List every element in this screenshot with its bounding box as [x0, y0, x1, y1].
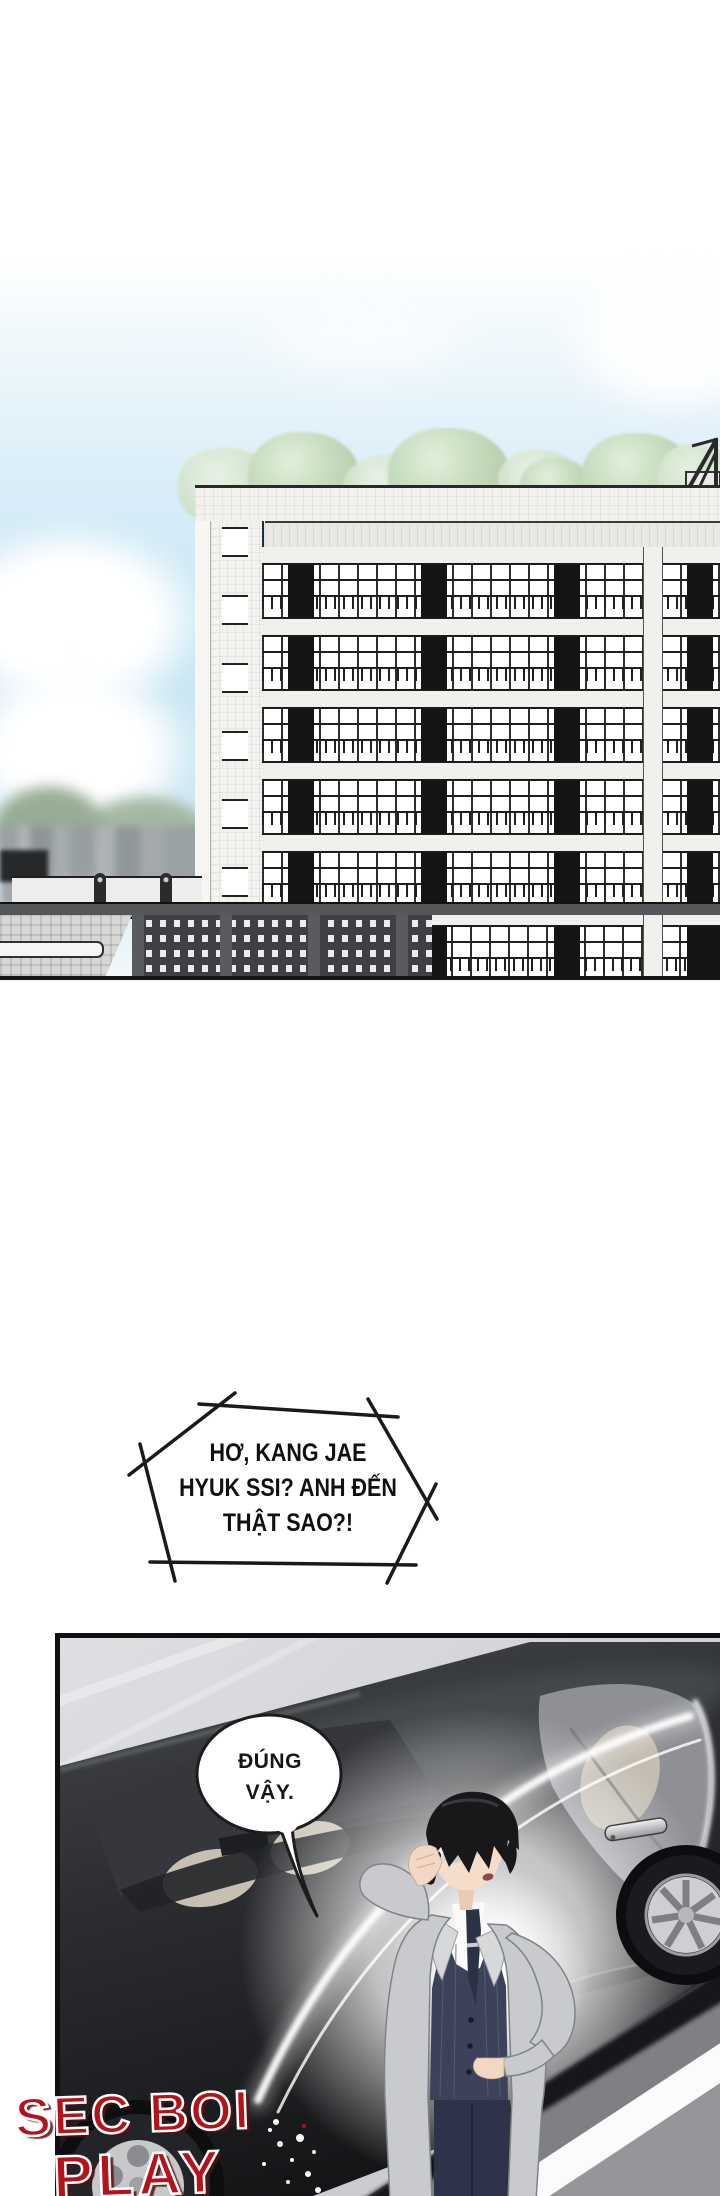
canopy-slot — [0, 941, 104, 958]
watermark-line-1: SEC BOI — [14, 2082, 252, 2146]
reply-bubble-text: ĐÚNG VẬY. — [200, 1746, 340, 1808]
shout-line-2: HYUK SSI? ANH ĐẾN — [168, 1471, 409, 1506]
reply-speech-bubble — [190, 1710, 360, 1930]
building-setback-band — [265, 521, 720, 549]
fence-post — [94, 873, 106, 904]
neck — [458, 1890, 474, 1910]
building-lower-floors — [432, 915, 720, 976]
shout-bubble-text: HƠ, KANG JAE HYUK SSI? ANH ĐẾN THẬT SAO?… — [168, 1436, 409, 1541]
watermark-line-2: PLAY — [52, 2140, 254, 2196]
bubble-tail — [278, 1822, 317, 1916]
paint-splatter — [268, 2128, 272, 2132]
fence-post — [160, 873, 172, 904]
reply-line-2: VẬY. — [200, 1777, 340, 1808]
building-corner-column-lower — [643, 915, 663, 976]
shout-line-1: HƠ, KANG JAE — [168, 1436, 409, 1471]
comic-page: HƠ, KANG JAE HYUK SSI? ANH ĐẾN THẬT SAO?… — [0, 0, 720, 2196]
cloud — [250, 295, 480, 385]
shout-line-3: THẬT SAO?! — [168, 1506, 409, 1541]
building-parapet — [195, 485, 720, 524]
panel-building-scene — [0, 0, 720, 982]
reply-line-1: ĐÚNG — [200, 1746, 340, 1777]
scanlation-watermark: SEC BOI PLAY — [14, 2082, 254, 2196]
rooftop-steel-structure — [684, 434, 720, 488]
parking-structure — [132, 915, 432, 978]
panel-bottom-line — [0, 976, 720, 980]
